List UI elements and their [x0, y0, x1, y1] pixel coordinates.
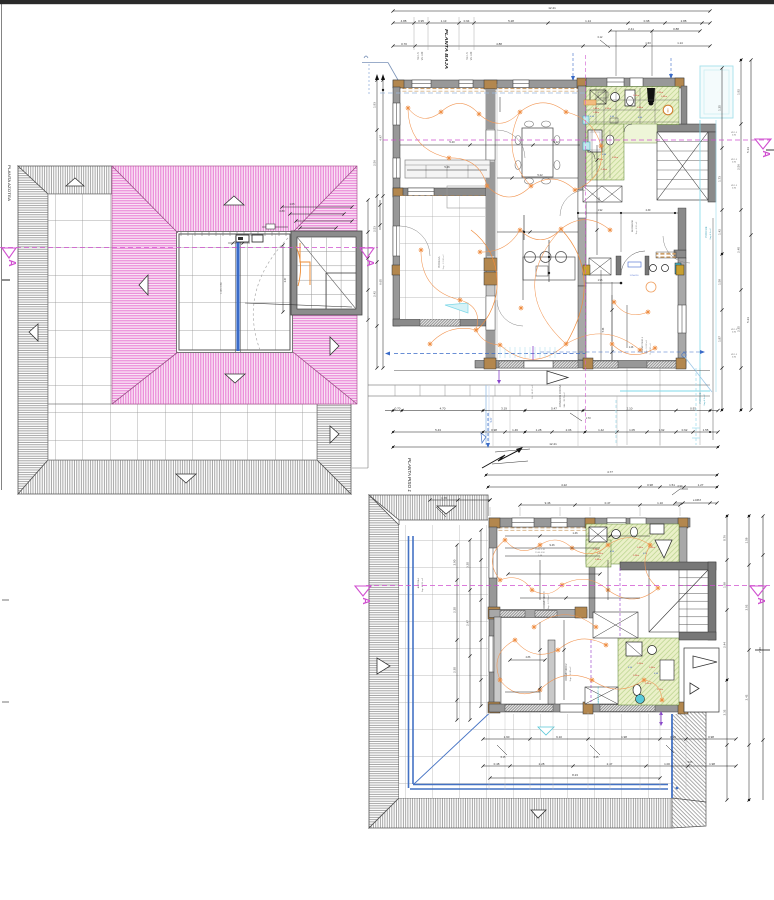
- svg-text:1.98: 1.98: [709, 762, 715, 766]
- svg-text:SAL.: 38.75 m2: SAL.: 38.75 m2: [563, 392, 566, 408]
- svg-text:VE 1.5: VE 1.5: [466, 52, 469, 60]
- svg-text:2.06: 2.06: [566, 428, 572, 432]
- svg-text:Sup.: 11.48 m2: Sup.: 11.48 m2: [570, 666, 572, 681]
- svg-text:1.25: 1.25: [718, 105, 722, 111]
- svg-text:1.48 m: 1.48 m: [649, 667, 655, 669]
- svg-text:0.70: 0.70: [395, 406, 401, 410]
- svg-text:1.90: 1.90: [504, 735, 510, 739]
- svg-text:1.05: 1.05: [629, 428, 635, 432]
- svg-text:S.L. 14.07 m2: S.L. 14.07 m2: [532, 384, 534, 398]
- svg-text:2.42: 2.42: [745, 694, 749, 700]
- svg-text:BODEGA: BODEGA: [437, 256, 441, 267]
- svg-text:1.70x2.10: 1.70x2.10: [630, 275, 640, 277]
- svg-text:1.48 m: 1.48 m: [657, 92, 663, 94]
- svg-text:VE 1.80: VE 1.80: [421, 51, 424, 60]
- svg-text:1.48 m: 1.48 m: [593, 112, 599, 114]
- svg-text:4.88: 4.88: [401, 19, 407, 23]
- svg-text:5.05: 5.05: [688, 761, 693, 764]
- svg-text:5.43: 5.43: [435, 428, 441, 432]
- svg-text:0.48: 0.48: [494, 762, 500, 766]
- svg-text:0.94: 0.94: [464, 19, 470, 23]
- svg-text:8.15: 8.15: [594, 756, 599, 759]
- svg-text:2.39: 2.39: [646, 209, 651, 212]
- svg-text:1.42: 1.42: [718, 229, 722, 235]
- svg-text:BAJANTE PVC-110: BAJANTE PVC-110: [597, 685, 600, 703]
- svg-text:1.10: 1.10: [657, 501, 663, 505]
- svg-text:a 188.8: a 188.8: [693, 499, 702, 502]
- svg-text:1.58: 1.58: [718, 279, 722, 285]
- svg-text:2.42: 2.42: [373, 291, 377, 297]
- svg-text:0.70: 0.70: [401, 42, 407, 46]
- svg-text:PORCHE: PORCHE: [698, 392, 702, 403]
- svg-text:1.05: 1.05: [289, 202, 295, 206]
- svg-text:Sup.: 12.55 m2: Sup.: 12.55 m2: [548, 594, 550, 610]
- svg-text:2.92: 2.92: [745, 604, 749, 610]
- svg-text:2.10: 2.10: [627, 406, 633, 410]
- svg-text:9.46: 9.46: [549, 543, 555, 547]
- svg-text:Sup 4.9 m2: Sup 4.9 m2: [710, 228, 712, 240]
- svg-text:0.98: 0.98: [491, 428, 497, 432]
- svg-text:4.47: 4.47: [379, 135, 383, 141]
- svg-text:4.70: 4.70: [440, 406, 446, 410]
- svg-text:1.48 m: 1.48 m: [612, 157, 618, 159]
- svg-text:2.44: 2.44: [723, 642, 727, 648]
- svg-text:PLANTA PISO 1: PLANTA PISO 1: [407, 458, 412, 493]
- svg-text:0.80: 0.80: [279, 209, 285, 213]
- svg-text:15.06 0.90: 15.06 0.90: [535, 552, 545, 554]
- svg-text:1.14: 1.14: [585, 19, 591, 23]
- svg-text:1.48 m: 1.48 m: [601, 169, 607, 171]
- svg-text:0.62: 0.62: [682, 428, 688, 432]
- svg-text:1.63: 1.63: [645, 41, 651, 45]
- svg-text:2.30: 2.30: [453, 667, 457, 673]
- svg-text:8.23: 8.23: [572, 773, 578, 777]
- svg-text:VE 1.80: VE 1.80: [470, 51, 473, 60]
- svg-text:1.92: 1.92: [659, 428, 665, 432]
- svg-text:0.76: 0.76: [723, 535, 727, 541]
- svg-text:Sup.: 10.82 m2: Sup.: 10.82 m2: [646, 339, 648, 353]
- svg-text:0.12: 0.12: [598, 36, 603, 39]
- svg-text:0.93: 0.93: [690, 406, 696, 410]
- svg-text:A: A: [364, 259, 375, 266]
- svg-text:1.46: 1.46: [629, 347, 634, 349]
- svg-text:5.46: 5.46: [444, 165, 450, 169]
- svg-text:2.47: 2.47: [466, 620, 470, 626]
- svg-text:Sup.: 9.95 m2: Sup.: 9.95 m2: [636, 221, 638, 234]
- svg-text:1.42: 1.42: [598, 428, 604, 432]
- svg-text:PLANTA BAJA: PLANTA BAJA: [444, 29, 449, 69]
- svg-text:2.28: 2.28: [539, 762, 545, 766]
- svg-text:5.47: 5.47: [490, 417, 493, 422]
- svg-text:1.48 m: 1.48 m: [637, 107, 643, 109]
- svg-text:5.22: 5.22: [537, 173, 543, 177]
- svg-text:0.47: 0.47: [605, 501, 611, 505]
- svg-text:Sup.: 13.98 m2: Sup.: 13.98 m2: [443, 254, 445, 270]
- svg-text:2.90: 2.90: [453, 559, 457, 565]
- svg-text:1.48 m: 1.48 m: [605, 108, 611, 110]
- svg-text:1.46: 1.46: [512, 428, 518, 432]
- svg-text:15.20 1.18: 15.20 1.18: [535, 549, 545, 551]
- svg-text:1.55: 1.55: [703, 428, 709, 432]
- svg-text:1.48 m: 1.48 m: [633, 675, 639, 677]
- svg-text:1.48 m: 1.48 m: [633, 95, 639, 97]
- svg-text:1.73: 1.73: [718, 176, 722, 182]
- svg-text:V.: 28.43 m3: V.: 28.43 m3: [650, 343, 652, 355]
- svg-text:5.28: 5.28: [508, 19, 514, 23]
- svg-text:2.35: 2.35: [737, 326, 741, 332]
- svg-text:2.56: 2.56: [737, 164, 741, 170]
- svg-text:2.86: 2.86: [526, 656, 531, 659]
- svg-text:5.13: 5.13: [746, 147, 750, 153]
- svg-text:2.93: 2.93: [598, 197, 601, 202]
- svg-text:1.14: 1.14: [677, 41, 683, 45]
- svg-text:2.88: 2.88: [681, 19, 687, 23]
- svg-text:1.48 m: 1.48 m: [595, 559, 601, 561]
- svg-text:VE 1.5: VE 1.5: [417, 52, 420, 60]
- svg-text:1.48 m: 1.48 m: [637, 547, 643, 549]
- svg-text:1.48 m: 1.48 m: [637, 663, 643, 665]
- svg-text:1.48 m: 1.48 m: [597, 553, 603, 555]
- svg-text:A: A: [6, 259, 17, 266]
- svg-text:1.48 m: 1.48 m: [593, 108, 599, 110]
- svg-text:3.20: 3.20: [466, 562, 470, 568]
- svg-text:6.65: 6.65: [379, 279, 383, 285]
- svg-text:4.77: 4.77: [607, 470, 613, 474]
- svg-text:9.10: 9.10: [556, 735, 562, 739]
- svg-text:0.88: 0.88: [673, 27, 679, 31]
- svg-text:2.40: 2.40: [737, 247, 741, 253]
- svg-text:4.22: 4.22: [561, 483, 567, 487]
- svg-text:1.51: 1.51: [669, 483, 675, 487]
- svg-text:1.92: 1.92: [598, 209, 603, 212]
- svg-text:DORMITORIO 1: DORMITORIO 1: [642, 336, 644, 353]
- svg-text:PLANTA AZOTEA: PLANTA AZOTEA: [7, 165, 12, 201]
- svg-text:12.41: 12.41: [549, 442, 557, 446]
- svg-text:2.56: 2.56: [373, 160, 377, 166]
- svg-text:4.88: 4.88: [496, 42, 502, 46]
- svg-text:PORCHE: PORCHE: [704, 226, 708, 237]
- svg-text:2.47: 2.47: [285, 277, 287, 282]
- svg-text:1.92: 1.92: [737, 89, 741, 95]
- svg-text:1.48 m: 1.48 m: [661, 96, 667, 98]
- svg-text:2.47: 2.47: [607, 762, 613, 766]
- svg-text:1.46: 1.46: [572, 531, 578, 535]
- svg-text:5.22: 5.22: [553, 140, 559, 144]
- svg-text:Sup 4.9 m2: Sup 4.9 m2: [704, 394, 706, 406]
- svg-text:1.76: 1.76: [441, 496, 447, 500]
- svg-text:5.46: 5.46: [603, 327, 605, 332]
- svg-text:1.96: 1.96: [598, 279, 603, 282]
- svg-text:5.23: 5.23: [746, 317, 750, 323]
- svg-text:0.96: 0.96: [670, 735, 676, 739]
- svg-text:1.48 m: 1.48 m: [593, 549, 599, 551]
- svg-text:1.13: 1.13: [441, 19, 447, 23]
- svg-text:5.47: 5.47: [551, 406, 557, 410]
- svg-text:9.46: 9.46: [545, 501, 551, 505]
- svg-text:0.98: 0.98: [708, 735, 714, 739]
- svg-text:1.98 x 0.60: 1.98 x 0.60: [221, 282, 223, 294]
- svg-text:1.58: 1.58: [745, 537, 749, 543]
- svg-text:2.41: 2.41: [628, 27, 634, 31]
- svg-text:1.87: 1.87: [718, 336, 722, 342]
- svg-text:0.98: 0.98: [647, 483, 653, 487]
- svg-text:1.98: 1.98: [621, 735, 627, 739]
- svg-text:2.53: 2.53: [373, 226, 377, 232]
- svg-text:12.41: 12.41: [548, 6, 556, 10]
- svg-text:1.48 m: 1.48 m: [633, 555, 639, 557]
- svg-text:0.95: 0.95: [418, 19, 424, 23]
- svg-text:RECIBIDOR: RECIBIDOR: [632, 220, 634, 233]
- svg-text:1.73: 1.73: [585, 416, 591, 420]
- svg-text:1.48 m: 1.48 m: [645, 683, 651, 685]
- svg-text:6.15: 6.15: [501, 756, 506, 759]
- svg-text:0.90: 0.90: [678, 485, 683, 488]
- svg-text:1.93: 1.93: [373, 102, 377, 108]
- svg-text:0.98: 0.98: [644, 19, 650, 23]
- svg-text:3.19: 3.19: [501, 406, 507, 410]
- svg-text:2.20: 2.20: [453, 607, 457, 613]
- svg-text:DORMITORIO 2: DORMITORIO 2: [566, 663, 568, 681]
- svg-text:1.27: 1.27: [698, 483, 704, 487]
- svg-text:1.48 m: 1.48 m: [657, 689, 663, 691]
- svg-text:2.32: 2.32: [723, 709, 727, 715]
- svg-text:A: A: [360, 597, 371, 604]
- svg-text:A: A: [760, 150, 771, 157]
- svg-text:AZOTEA 1: AZOTEA 1: [417, 577, 420, 588]
- svg-text:A: A: [755, 597, 766, 604]
- svg-text:Sup: 48.01 m2: Sup: 48.01 m2: [422, 577, 424, 592]
- svg-text:1.28: 1.28: [536, 428, 542, 432]
- svg-text:1.98: 1.98: [723, 582, 727, 588]
- svg-text:5.40: 5.40: [449, 140, 455, 144]
- svg-text:1.00: 1.00: [664, 762, 670, 766]
